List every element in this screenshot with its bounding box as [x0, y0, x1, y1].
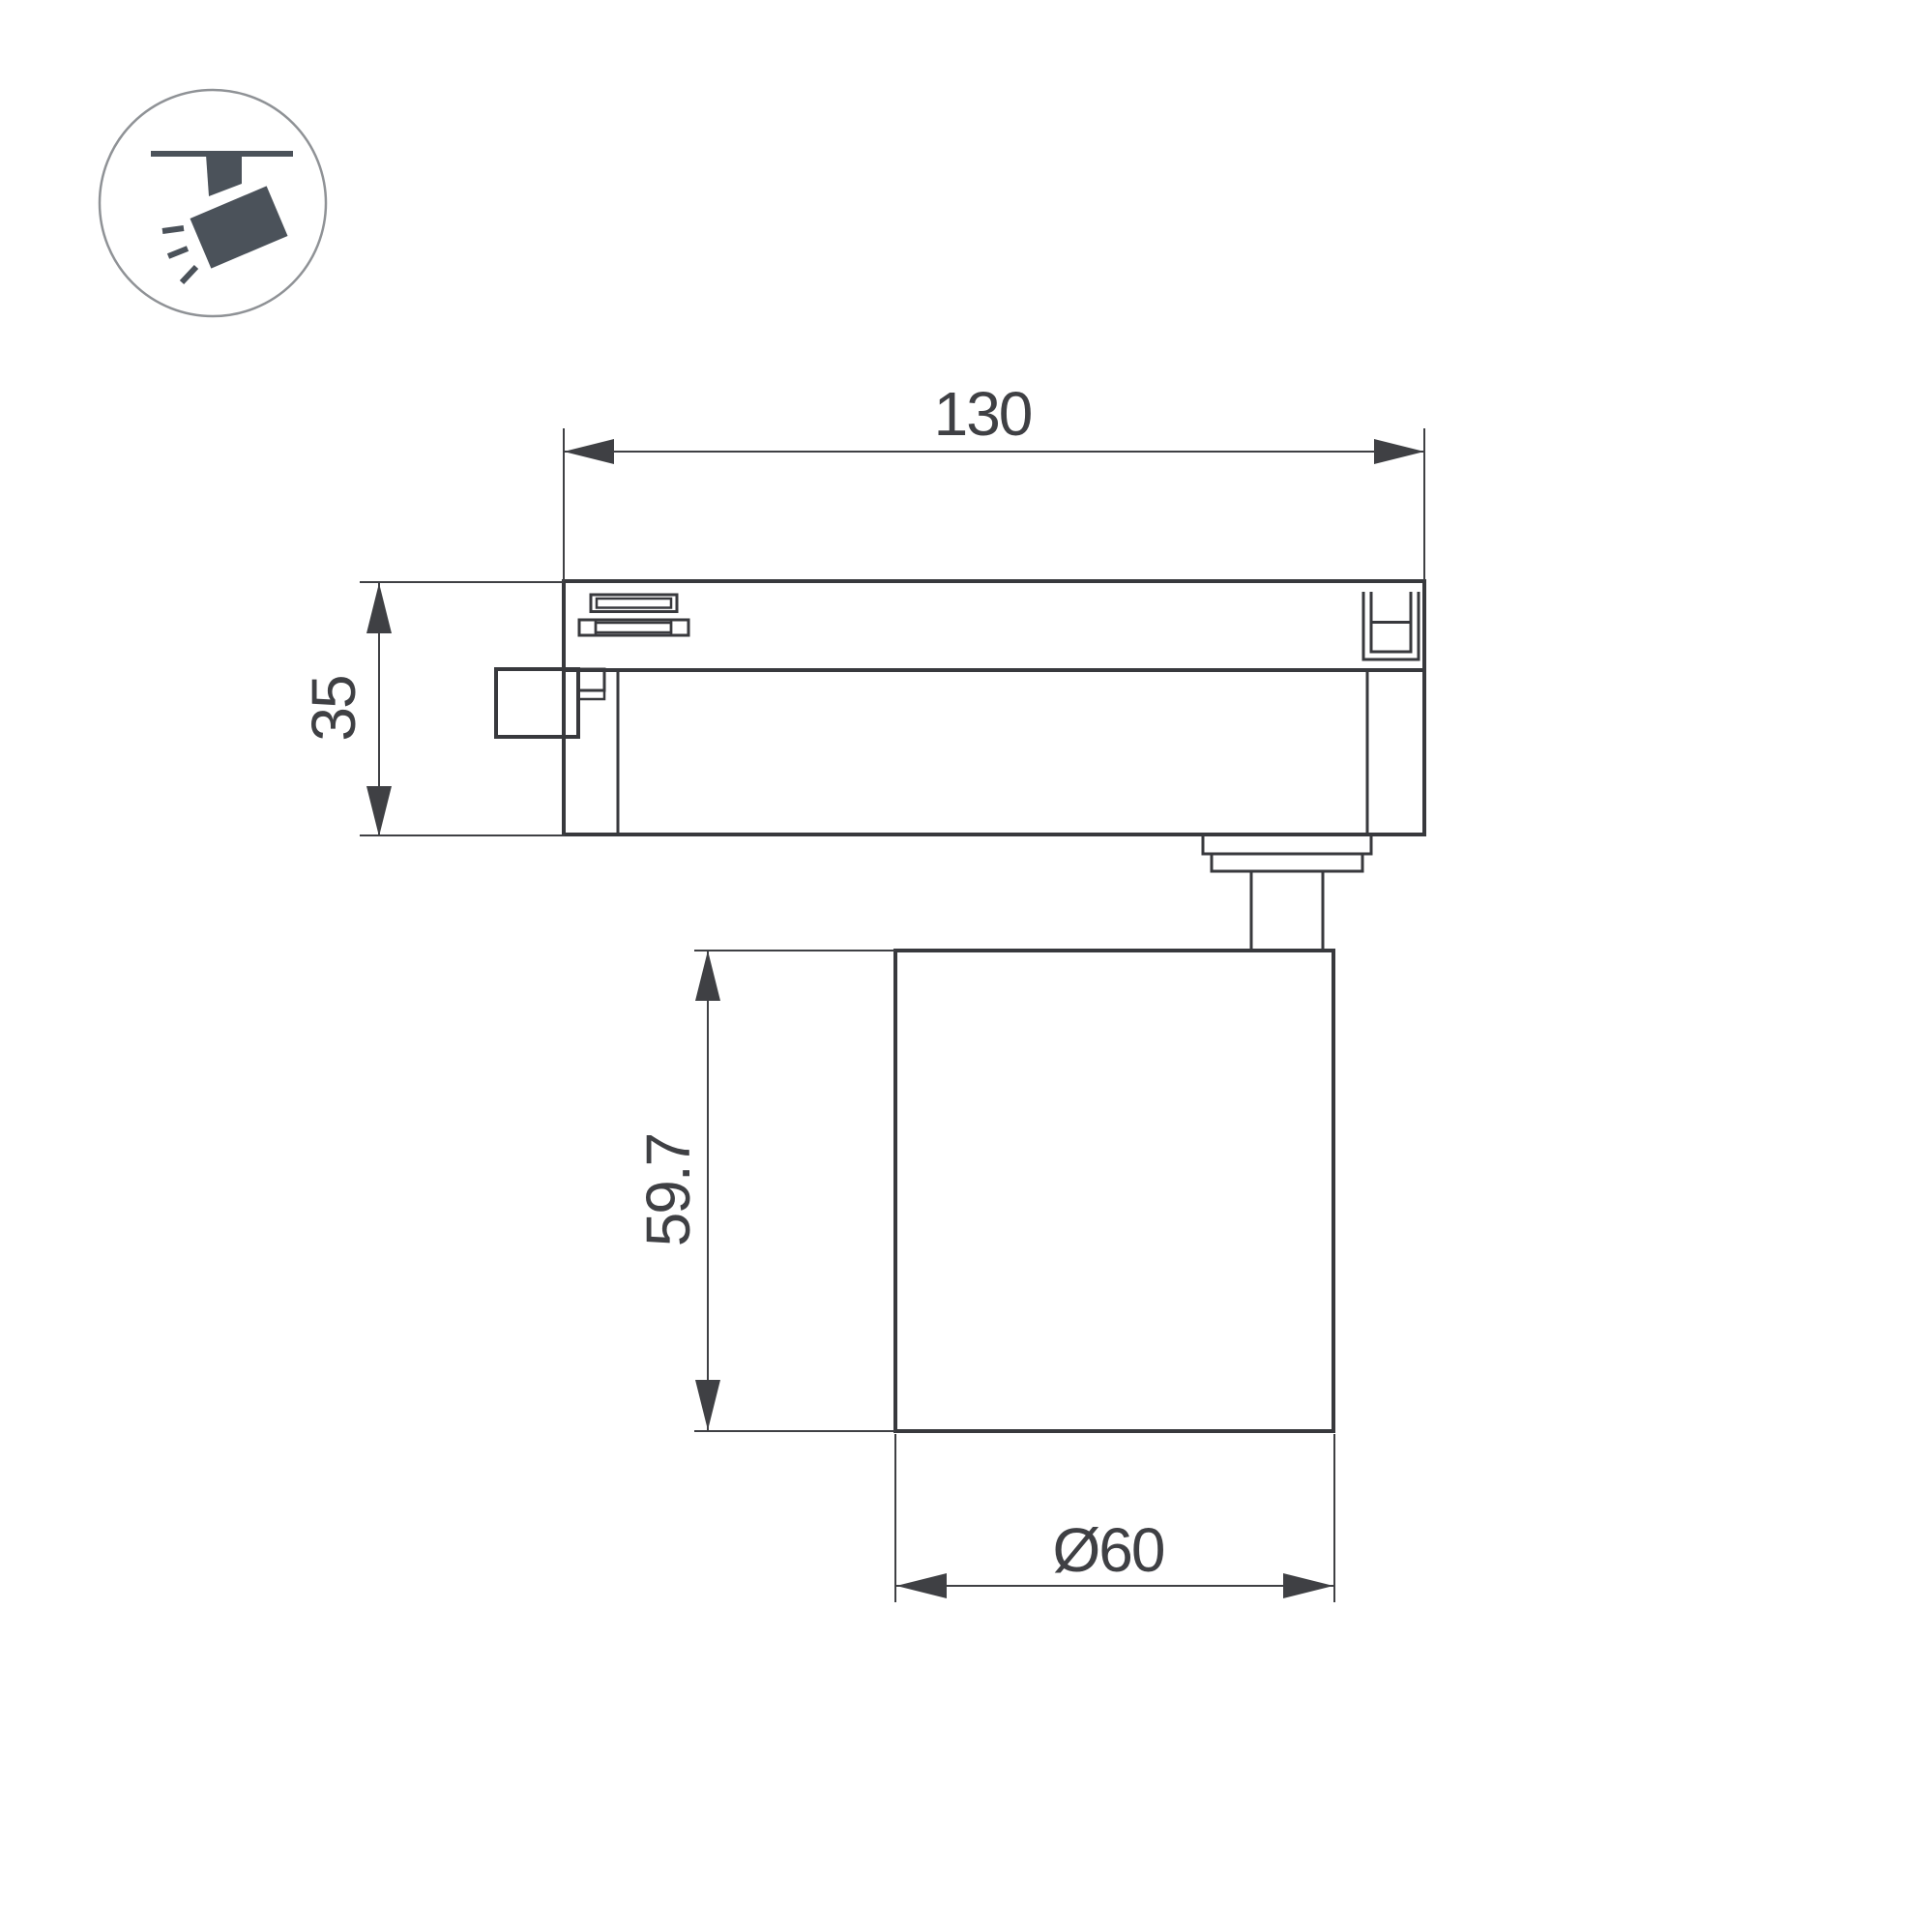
- arrow-right: [1374, 439, 1424, 464]
- dim-label-adapter-height: 35: [299, 676, 368, 741]
- arrow-down: [366, 786, 392, 836]
- lock-lever: [496, 669, 578, 737]
- dim-track-width: 130: [564, 379, 1424, 581]
- lever-notch: [578, 669, 604, 699]
- neck-flange-upper: [1203, 834, 1371, 854]
- clip-inner: [597, 599, 671, 608]
- contact-clip-upper: [591, 595, 677, 612]
- notch-upper: [578, 669, 604, 690]
- dim-adapter-height: 35: [299, 582, 565, 836]
- drawing-canvas: 130 35 59.7 Ø60: [0, 0, 1932, 1932]
- arrow-up: [695, 951, 720, 1001]
- dim-label-lamp-height: 59.7: [633, 1134, 703, 1247]
- arrow-down: [695, 1380, 720, 1430]
- arrow-right: [1283, 1573, 1333, 1598]
- latch-bracket: [1363, 592, 1419, 659]
- dim-lamp-height: 59.7: [633, 951, 895, 1431]
- dim-label-track-width: 130: [934, 379, 1032, 449]
- neck-stem: [1251, 871, 1323, 951]
- mount-neck: [1203, 834, 1371, 951]
- clip-inner: [596, 623, 671, 632]
- dim-label-lamp-diameter: Ø60: [1053, 1515, 1164, 1585]
- lamp-body: [895, 951, 1333, 1431]
- ray-1: [162, 228, 184, 231]
- icon-circle: [100, 90, 326, 316]
- contact-clip-lower: [579, 620, 688, 635]
- adapter-body: [564, 581, 1424, 834]
- track-adapter: [496, 581, 1424, 834]
- technical-drawing: 130 35 59.7 Ø60: [0, 0, 1932, 1932]
- dim-lamp-diameter: Ø60: [895, 1434, 1334, 1602]
- arrow-up: [366, 583, 392, 633]
- arrow-left: [564, 439, 614, 464]
- fixture-view: [496, 581, 1424, 1431]
- mount-type-badge: [100, 90, 326, 316]
- neck-flange-lower: [1212, 854, 1362, 871]
- dimensions: 130 35 59.7 Ø60: [299, 379, 1424, 1602]
- clip-outer: [591, 595, 677, 612]
- arrow-left: [896, 1573, 947, 1598]
